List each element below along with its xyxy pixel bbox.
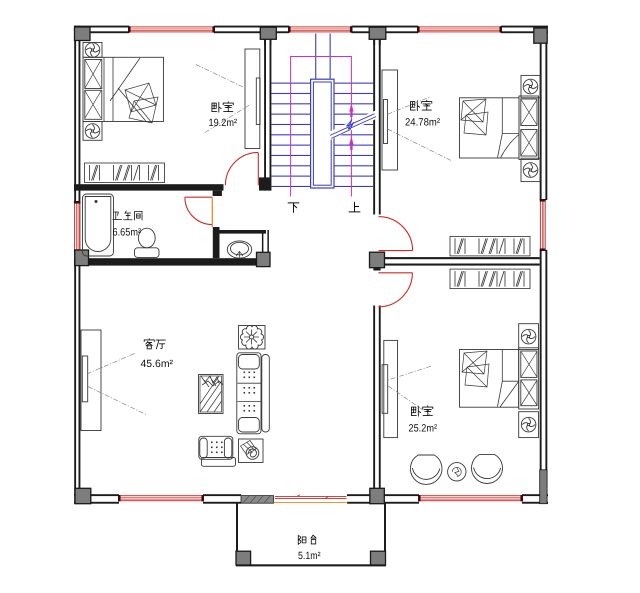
- svg-text:5.1m²: 5.1m²: [298, 550, 321, 562]
- svg-text:6.65m²: 6.65m²: [113, 227, 142, 239]
- svg-text:45.6m²: 45.6m²: [141, 358, 174, 370]
- svg-text:25.2m²: 25.2m²: [409, 423, 438, 435]
- svg-text:24.78m²: 24.78m²: [405, 117, 440, 129]
- svg-text:19.2m²: 19.2m²: [209, 117, 238, 129]
